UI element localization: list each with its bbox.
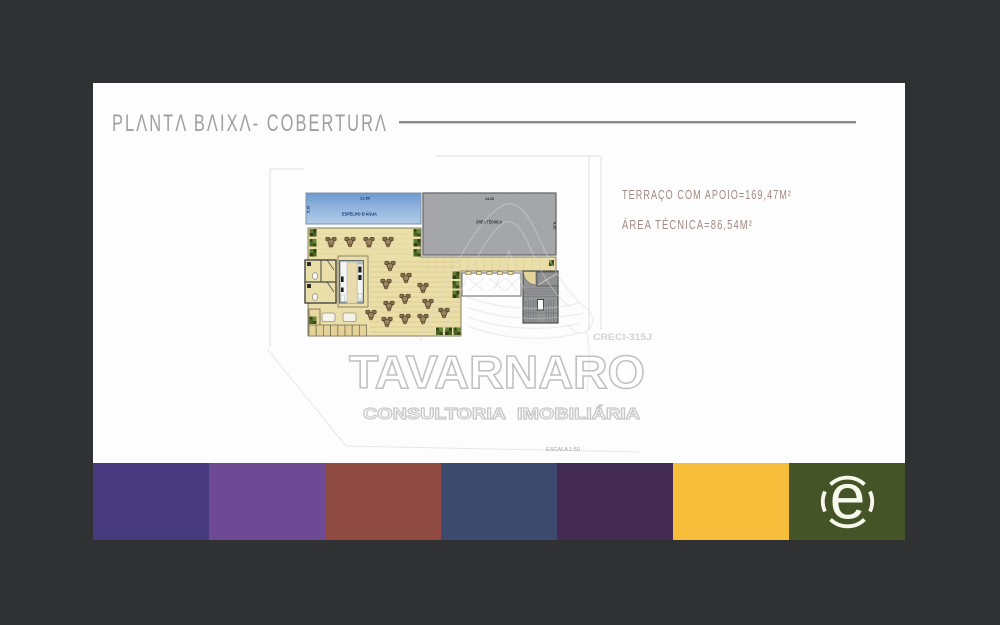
svg-text:e: e bbox=[830, 461, 866, 533]
svg-text:8.10: 8.10 bbox=[553, 222, 557, 229]
svg-text:CRECI-315J: CRECI-315J bbox=[593, 332, 652, 342]
svg-text:5.10: 5.10 bbox=[307, 206, 311, 213]
svg-text:14.30: 14.30 bbox=[485, 197, 494, 201]
svg-text:TERRAÇO COM APOIO=169,47M²: TERRAÇO COM APOIO=169,47M² bbox=[622, 187, 792, 202]
svg-text:ÁREA TÉCNICA=86,54M²: ÁREA TÉCNICA=86,54M² bbox=[622, 217, 753, 232]
svg-text:ESCALA 1:50: ESCALA 1:50 bbox=[546, 447, 580, 453]
svg-text:11.80: 11.80 bbox=[360, 197, 370, 201]
svg-text:ESPELHO D'ÁGUA: ESPELHO D'ÁGUA bbox=[342, 212, 378, 217]
svg-text:TAVARNARO: TAVARNARO bbox=[349, 346, 645, 398]
svg-text:ÁREA TÉCNICA: ÁREA TÉCNICA bbox=[476, 220, 502, 225]
svg-text:CONSULTORIA IMOBILIÁRIA: CONSULTORIA IMOBILIÁRIA bbox=[363, 406, 640, 423]
svg-text:PLΛNTΛ BΛIXΛ- COBERTURΛ: PLΛNTΛ BΛIXΛ- COBERTURΛ bbox=[112, 110, 388, 137]
